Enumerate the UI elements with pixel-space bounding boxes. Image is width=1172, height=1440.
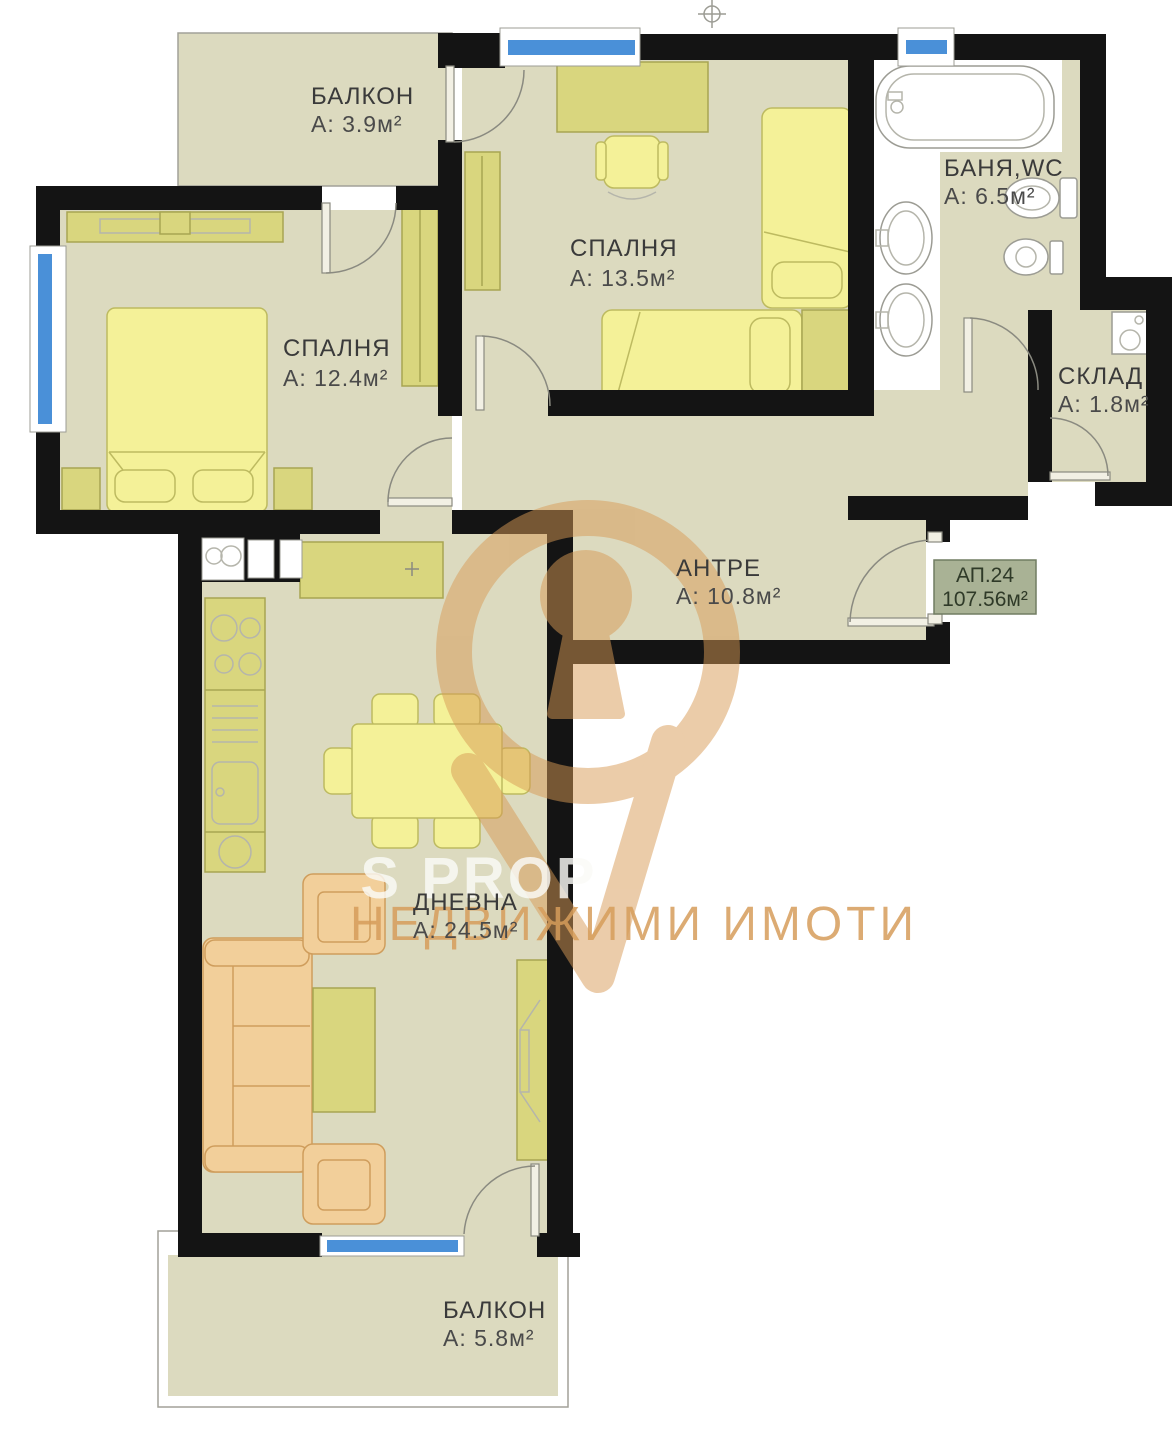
apartment-badge: АП.24 107.56м² xyxy=(934,560,1036,614)
area-bathroom: А: 6.5м² xyxy=(944,183,1036,209)
label-living-room: ДНЕВНА xyxy=(413,889,518,916)
label-balcony-bottom: БАЛКОН xyxy=(443,1297,546,1324)
nightstand-2 xyxy=(274,468,312,510)
desk-chair-arm xyxy=(596,142,606,180)
corner-table xyxy=(802,310,852,402)
toilet-tank xyxy=(1060,178,1077,218)
wall-segment xyxy=(438,33,505,68)
door-leaf-balcony-bottom xyxy=(531,1164,539,1236)
wall-segment xyxy=(573,640,950,664)
wall-segment xyxy=(178,1233,322,1257)
sofa-armrest xyxy=(205,940,309,966)
wall-segment xyxy=(1146,310,1172,506)
coffee-table xyxy=(313,988,375,1112)
label-storage: СКЛАД xyxy=(1058,363,1143,390)
label-bedroom-1: СПАЛНЯ xyxy=(283,335,391,362)
kitchen-wall-appliances xyxy=(202,538,302,580)
wall-segment xyxy=(36,186,322,210)
window-bedroom-1 xyxy=(38,254,52,424)
wall-segment xyxy=(178,582,202,1257)
label-bedroom-2: СПАЛНЯ xyxy=(570,235,678,262)
label-hallway: АНТРЕ xyxy=(676,555,761,582)
window-bedroom-2 xyxy=(508,40,635,55)
fridge-icon xyxy=(202,538,244,580)
logo-keyhole-body xyxy=(552,634,620,714)
pillow-3 xyxy=(772,262,842,298)
label-bathroom: БАНЯ,WC xyxy=(944,155,1064,182)
wall-segment xyxy=(537,1233,580,1257)
armchair-2-seat xyxy=(318,1160,370,1210)
wall-segment xyxy=(926,622,950,664)
hallway-corridor-floor xyxy=(848,414,1028,496)
label-balcony-top: БАЛКОН xyxy=(311,83,414,110)
desk-chair-arm-2 xyxy=(658,142,668,180)
kitchen-upper-counter xyxy=(300,542,443,598)
sofa xyxy=(203,938,312,1172)
door-leaf-bedroom-1 xyxy=(388,498,452,506)
dining-chair xyxy=(372,694,418,728)
wall-segment xyxy=(438,140,462,416)
area-balcony-bottom: А: 5.8м² xyxy=(443,1325,535,1351)
door-leaf-balcony-top xyxy=(322,203,330,273)
sofa-armrest-2 xyxy=(205,1146,309,1172)
wall-segment xyxy=(1028,310,1052,482)
door-leaf-bathroom xyxy=(964,318,972,392)
area-hallway: А: 10.8м² xyxy=(676,583,781,609)
wall-segment xyxy=(638,34,874,60)
desk xyxy=(557,62,708,132)
area-bedroom-2: А: 13.5м² xyxy=(570,265,675,291)
wall-segment xyxy=(1095,482,1172,506)
tv-stand xyxy=(160,212,190,234)
dining-chair-3 xyxy=(324,748,356,794)
wall-segment xyxy=(396,186,462,210)
compass-icon xyxy=(698,0,726,28)
wall-segment xyxy=(848,496,1028,520)
wall-segment xyxy=(548,390,874,416)
badge-apartment-number: АП.24 xyxy=(956,564,1014,587)
wall-segment xyxy=(1080,34,1106,286)
pillow-4 xyxy=(750,318,790,394)
floor-plan-page: S PROP НЕДВИЖИМИ ИМОТИ БАЛКОН А: 3.9м² С… xyxy=(0,0,1172,1440)
door-jamb-2 xyxy=(928,614,942,624)
area-balcony-top: А: 3.9м² xyxy=(311,111,403,137)
desk-chair xyxy=(604,136,660,188)
bidet-icon xyxy=(1004,239,1048,275)
bidet-tank xyxy=(1050,241,1063,274)
logo-keyhole-head xyxy=(540,550,632,642)
cabinet-niche-2 xyxy=(280,540,302,578)
wall-segment xyxy=(36,186,60,252)
pillow-2 xyxy=(193,470,253,502)
floor-plan-drawing: S PROP НЕДВИЖИМИ ИМОТИ БАЛКОН А: 3.9м² С… xyxy=(0,0,1172,1440)
window-bathroom xyxy=(906,40,947,54)
area-living-room: А: 24.5м² xyxy=(413,917,518,943)
tv-unit xyxy=(517,960,548,1160)
door-leaf-bedroom-2 xyxy=(476,336,484,410)
door-leaf-storage xyxy=(1050,472,1110,480)
door-leaf-balcony-side xyxy=(446,66,454,142)
door-jamb xyxy=(928,532,942,542)
area-bedroom-1: А: 12.4м² xyxy=(283,365,388,391)
badge-total-area: 107.56м² xyxy=(942,588,1028,611)
wall-segment xyxy=(1080,277,1172,310)
door-leaf-entrance xyxy=(848,618,934,626)
dining-chair-5 xyxy=(372,814,418,848)
dining-chair-6 xyxy=(434,814,480,848)
wall-segment xyxy=(848,60,874,416)
kitchen-counter-left xyxy=(205,598,265,872)
window-living-room xyxy=(327,1240,458,1252)
storage-fixtures xyxy=(1112,312,1148,354)
pillow xyxy=(115,470,175,502)
cabinet-niche xyxy=(248,540,274,578)
area-storage: А: 1.8м² xyxy=(1058,391,1150,417)
wall-segment xyxy=(36,510,380,534)
nightstand xyxy=(62,468,100,510)
